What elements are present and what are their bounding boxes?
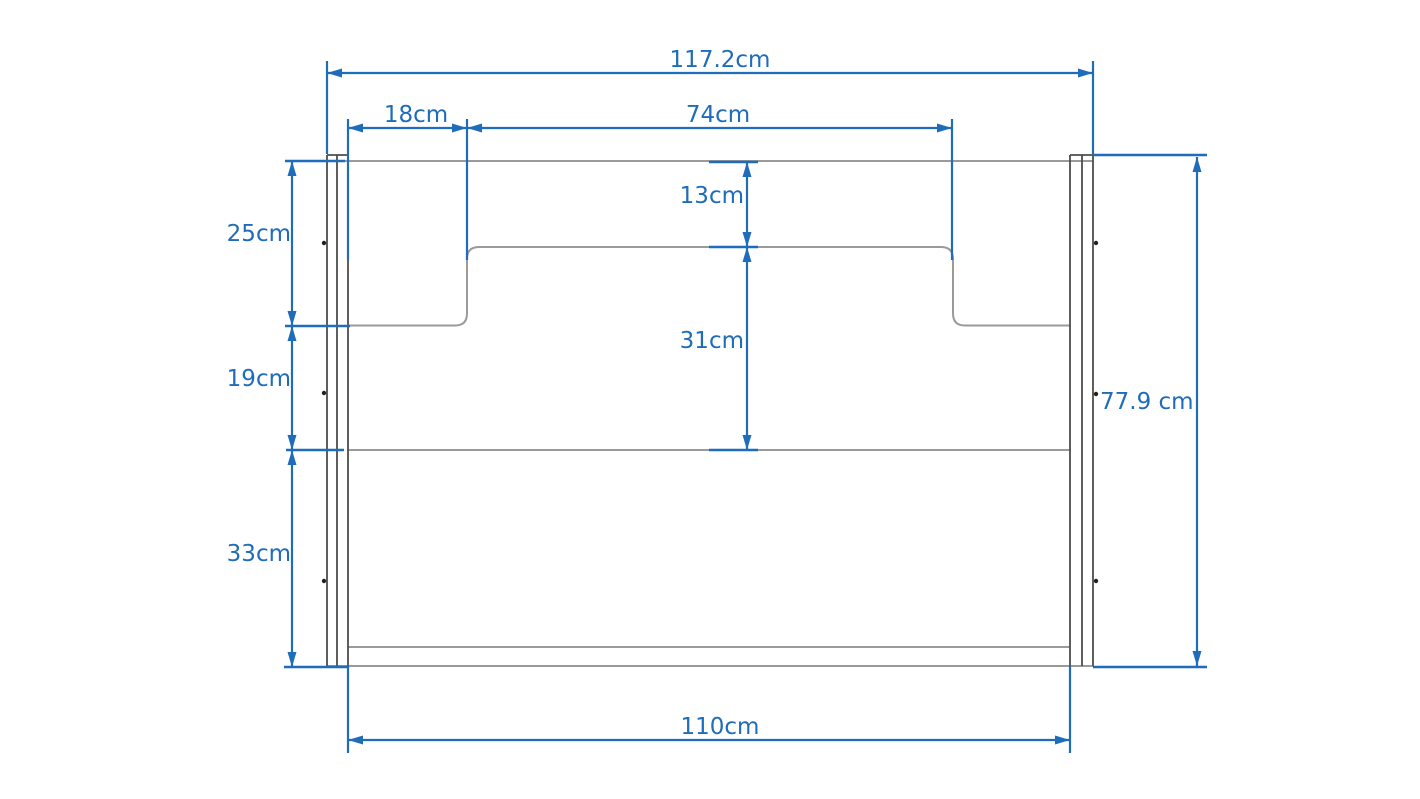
- arrowhead-down: [288, 652, 297, 667]
- arrowhead-left: [348, 736, 363, 745]
- dim-middle-left-label: 19cm: [227, 366, 291, 392]
- dim-lower-left: 33cm: [227, 450, 347, 667]
- arrowhead-up: [288, 161, 297, 176]
- dim-overall-width-label: 117.2cm: [670, 47, 771, 73]
- dim-recess-height: 31cm: [680, 247, 758, 450]
- dimension-drawing-page: 117.2cm 18cm 74cm 13cm: [0, 0, 1420, 799]
- arrowhead-down: [288, 435, 297, 450]
- furniture-dimension-drawing: 117.2cm 18cm 74cm 13cm: [0, 0, 1420, 799]
- peg-dot: [1094, 579, 1098, 583]
- dim-overall-height: 77.9 cm: [1093, 155, 1207, 667]
- peg-dot: [322, 391, 326, 395]
- dim-lower-left-label: 33cm: [227, 541, 291, 567]
- arrowhead-up: [1193, 157, 1202, 172]
- right-side-panel: [1070, 155, 1093, 666]
- arrowhead-up: [288, 326, 297, 341]
- dim-inner-width: 110cm: [348, 666, 1070, 753]
- back-panel-cutout: [348, 247, 1070, 326]
- dim-side-inset: 18cm: [348, 102, 467, 260]
- dim-upper-left-label: 25cm: [227, 221, 291, 247]
- arrowhead-down: [288, 311, 297, 326]
- peg-dot: [1094, 392, 1098, 396]
- dim-overall-width: 117.2cm: [327, 47, 1093, 154]
- dim-recess-height-label: 31cm: [680, 328, 744, 354]
- peg-dot: [322, 241, 326, 245]
- arrowhead-left: [327, 69, 342, 78]
- dim-upper-left: 25cm: [227, 161, 350, 326]
- arrowhead-left: [467, 124, 482, 133]
- dim-top-drop-label: 13cm: [680, 183, 744, 209]
- arrowhead-up: [288, 450, 297, 465]
- dim-center-section-label: 74cm: [686, 102, 750, 128]
- arrowhead-down: [1193, 651, 1202, 666]
- peg-dot: [322, 579, 326, 583]
- panel-peg-marks: [322, 241, 1098, 583]
- arrowhead-down: [743, 435, 752, 450]
- dim-side-inset-label: 18cm: [384, 102, 448, 128]
- furniture-outline: [322, 155, 1098, 666]
- arrowhead-right: [452, 124, 467, 133]
- arrowhead-right: [1078, 69, 1093, 78]
- arrowhead-right: [937, 124, 952, 133]
- dim-top-drop: 13cm: [680, 162, 758, 247]
- arrowhead-right: [1055, 736, 1070, 745]
- arrowhead-down: [743, 232, 752, 247]
- arrowhead-left: [348, 124, 363, 133]
- dim-inner-width-label: 110cm: [681, 714, 760, 740]
- peg-dot: [1094, 241, 1098, 245]
- arrowhead-up: [743, 162, 752, 177]
- dim-center-section: 74cm: [467, 102, 952, 260]
- left-side-panel: [327, 155, 348, 666]
- dim-overall-height-label: 77.9 cm: [1100, 389, 1194, 415]
- arrowhead-up: [743, 247, 752, 262]
